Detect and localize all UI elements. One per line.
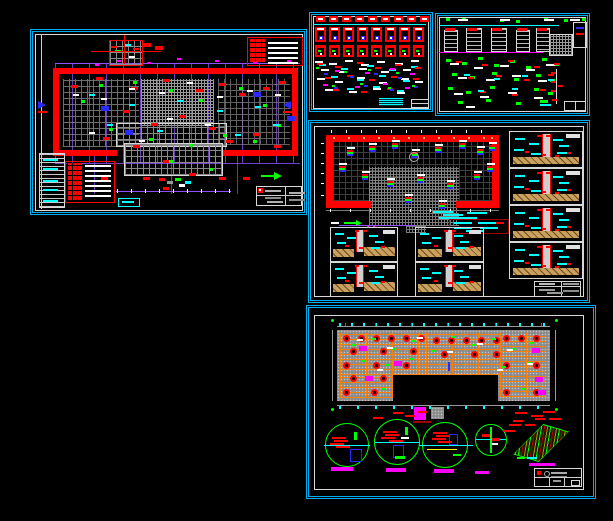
magenta-guide-line bbox=[439, 52, 543, 53]
note-box-cyan bbox=[118, 198, 140, 207]
section-marker-left bbox=[38, 101, 46, 109]
title-block bbox=[534, 281, 581, 297]
magenta-label bbox=[475, 471, 489, 474]
dimension-ticks-top bbox=[331, 130, 332, 133]
rebar-marks-red bbox=[444, 265, 448, 267]
annotation-marks-cyan bbox=[420, 233, 429, 235]
coping-detail-red bbox=[332, 437, 346, 439]
equipment-blocks-blue bbox=[101, 106, 109, 111]
dimension-ticks-magenta bbox=[345, 323, 346, 326]
detail-label bbox=[566, 171, 580, 175]
mini-detail-marks bbox=[159, 178, 165, 181]
earth-hatch bbox=[513, 194, 579, 201]
note-lines-cyan bbox=[433, 211, 453, 213]
dimension-line-right bbox=[555, 330, 556, 401]
magenta-block bbox=[414, 407, 426, 420]
schedule-text-bars bbox=[85, 165, 111, 167]
hatched-room-right bbox=[218, 79, 290, 145]
title-block-divider bbox=[535, 477, 581, 478]
coping-detail-red bbox=[482, 434, 490, 437]
title-block-divider bbox=[257, 195, 301, 196]
red-note-marks bbox=[143, 43, 151, 47]
section-marker-label bbox=[38, 111, 47, 113]
detail-frames-row1-bars bbox=[317, 28, 324, 30]
title-block-divider bbox=[412, 103, 428, 104]
annotation-marks-red bbox=[317, 63, 323, 65]
cyan-dash bbox=[527, 457, 537, 459]
red-wall-bottom-left bbox=[326, 201, 371, 208]
magenta-label bbox=[386, 468, 406, 472]
dimension-line-bottom bbox=[337, 405, 550, 406]
title-text-bars bbox=[265, 190, 281, 192]
magenta-label bbox=[529, 463, 555, 466]
green-axis-line bbox=[490, 427, 492, 453]
rebar-marks-red bbox=[355, 230, 359, 232]
sheet-green-details[interactable] bbox=[435, 13, 590, 116]
section-detail-panel bbox=[330, 227, 398, 262]
title-text-bars bbox=[553, 480, 561, 482]
detail-column-box bbox=[491, 28, 507, 52]
schedule-cells bbox=[249, 39, 265, 63]
callout-circle bbox=[374, 419, 420, 465]
magenta-label bbox=[434, 469, 454, 473]
sheet-framing-plan[interactable] bbox=[306, 305, 596, 499]
legend-highlight-bars bbox=[43, 159, 58, 161]
dimension-line-top bbox=[337, 326, 550, 327]
section-marker-label bbox=[283, 111, 292, 113]
annotation-marks-green bbox=[446, 59, 451, 62]
dimension-ticks-top bbox=[339, 323, 341, 326]
scale-bar bbox=[331, 222, 339, 224]
earth-hatch bbox=[364, 247, 395, 256]
red-wall-bottom-right bbox=[221, 150, 298, 156]
earth-hatch bbox=[333, 284, 354, 292]
title-block-divider bbox=[561, 282, 562, 296]
red-wall-bottom-right bbox=[456, 201, 499, 208]
lower-wing-lower bbox=[124, 143, 223, 176]
detail-axis-vertical bbox=[124, 35, 125, 64]
note-mark-red bbox=[496, 222, 504, 224]
detail-box-right bbox=[573, 22, 587, 48]
green-arrow bbox=[344, 222, 356, 224]
coping-detail-red bbox=[433, 432, 447, 434]
section-detail-panel bbox=[509, 168, 583, 205]
cyan-label-bar bbox=[540, 104, 551, 106]
beam-grid bbox=[500, 333, 546, 397]
annotation-marks-white bbox=[129, 88, 135, 90]
title-block bbox=[564, 101, 586, 111]
top-row-green-marks bbox=[446, 18, 450, 21]
rebar-marks-red bbox=[537, 209, 541, 211]
title-block bbox=[534, 468, 582, 487]
note-lines-cyan bbox=[454, 222, 472, 224]
annotation-marks-blue bbox=[324, 73, 328, 75]
table-line-cyan bbox=[439, 25, 559, 26]
detail-column-box bbox=[466, 28, 482, 52]
red-wall-left bbox=[326, 135, 333, 208]
red-wall-top bbox=[53, 68, 298, 74]
logo-mark bbox=[537, 471, 541, 475]
plan-circle-feature bbox=[409, 152, 419, 162]
title-text-bars bbox=[551, 472, 567, 474]
annotation-marks-cyan bbox=[464, 74, 470, 76]
red-wall-right bbox=[492, 135, 499, 208]
annotation-marks-cyan bbox=[335, 268, 344, 270]
foundation-column bbox=[542, 245, 551, 268]
detail-frames-row1-pips bbox=[320, 37, 322, 39]
wall-stud-dots bbox=[333, 137, 335, 139]
section-detail-panel bbox=[509, 131, 583, 168]
title-block bbox=[256, 186, 302, 206]
sheet-floor-plan[interactable] bbox=[30, 29, 307, 215]
annotation-marks-white bbox=[450, 63, 459, 65]
membrane-line-cyan bbox=[419, 445, 473, 446]
cad-canvas bbox=[0, 0, 613, 521]
annotation-marks-cyan bbox=[515, 212, 525, 214]
annotation-marks-red bbox=[393, 412, 403, 414]
annotation-marks-cyan bbox=[335, 233, 344, 235]
callout-circle bbox=[325, 423, 369, 467]
membrane-line-cyan bbox=[375, 442, 419, 443]
earth-hatch bbox=[513, 268, 579, 275]
beam-grid bbox=[426, 333, 500, 375]
section-detail-panel bbox=[415, 262, 484, 297]
title-block-divider bbox=[564, 477, 565, 486]
title-block-divider bbox=[575, 102, 576, 110]
beam-labels-white bbox=[357, 339, 363, 341]
detail-frames-row2-pips bbox=[320, 53, 322, 55]
white-dash bbox=[492, 443, 498, 445]
riser-detail-line bbox=[556, 69, 557, 104]
title-block-cell bbox=[571, 480, 580, 486]
dimension-line-left bbox=[332, 330, 333, 401]
dimension-ticks-bottom bbox=[330, 209, 331, 212]
earth-hatch bbox=[453, 282, 481, 291]
foundation-column bbox=[542, 171, 551, 194]
schedule-table-bottom bbox=[65, 161, 115, 203]
magenta-label bbox=[331, 467, 353, 471]
opening-marks-magenta bbox=[359, 346, 367, 351]
annotation-marks-magenta bbox=[335, 70, 340, 72]
slab-notch bbox=[393, 375, 498, 401]
sheet-detail-grid[interactable] bbox=[309, 12, 433, 112]
table-line-cyan bbox=[313, 24, 426, 25]
section-detail-panel bbox=[509, 242, 583, 279]
riser-detail-marks bbox=[551, 72, 556, 74]
membrane-line-cyan bbox=[324, 445, 370, 446]
detail-label bbox=[566, 208, 580, 212]
section-detail-panel bbox=[330, 262, 398, 297]
green-arrow bbox=[261, 175, 274, 177]
section-detail-panel bbox=[509, 205, 583, 242]
detail-column-box bbox=[444, 30, 458, 52]
title-text-bars bbox=[539, 283, 555, 285]
schedule-text-bars bbox=[268, 42, 298, 44]
earth-hatch bbox=[453, 247, 481, 256]
green-arrow-head bbox=[274, 172, 282, 180]
striped-legend-table bbox=[379, 98, 403, 106]
foundation-column bbox=[445, 265, 453, 287]
green-bar bbox=[405, 427, 408, 435]
equipment-tag-blue bbox=[347, 154, 353, 156]
plan-extension-grid bbox=[369, 167, 459, 226]
blue-frame bbox=[449, 434, 458, 445]
foundation-column bbox=[542, 208, 551, 231]
detail-column-box bbox=[516, 30, 530, 52]
dimension-marks-magenta bbox=[117, 60, 121, 62]
detail-label bbox=[469, 265, 481, 269]
dimension-line bbox=[116, 191, 231, 192]
red-wall-left bbox=[53, 68, 59, 156]
annotation-marks-cyan bbox=[420, 268, 429, 270]
equipment-tag-labels bbox=[347, 147, 355, 149]
rebar-marks-red bbox=[537, 246, 541, 248]
sheet-inner-frame bbox=[313, 16, 429, 109]
detail-label bbox=[383, 265, 395, 269]
membrane-line-cyan bbox=[476, 439, 506, 440]
earth-hatch bbox=[364, 282, 395, 291]
dimension-ticks-left bbox=[321, 143, 324, 144]
annotation-marks-cyan bbox=[515, 175, 525, 177]
detail-axis-horizontal bbox=[91, 51, 161, 52]
earth-hatch bbox=[513, 231, 579, 238]
foundation-column bbox=[356, 265, 364, 287]
detail-frames-row2-green bbox=[318, 50, 321, 52]
foundation-column bbox=[542, 134, 551, 157]
detail-label bbox=[566, 245, 580, 249]
green-label-bar bbox=[540, 100, 548, 103]
foundation-column bbox=[445, 230, 453, 252]
foundation-column bbox=[356, 230, 364, 252]
red-wall-top bbox=[326, 135, 499, 142]
section-detail-panel bbox=[415, 227, 484, 262]
schedule-table-top bbox=[247, 37, 303, 66]
annotation-marks-green bbox=[351, 344, 356, 346]
rebar-marks-red bbox=[355, 265, 359, 267]
annotation-marks-green bbox=[316, 67, 319, 69]
annotation-marks-red bbox=[456, 61, 462, 63]
gray-block bbox=[431, 407, 444, 419]
grid-line-extension bbox=[339, 225, 415, 226]
earth-hatch bbox=[333, 249, 354, 257]
dimension-ticks bbox=[117, 189, 118, 193]
red-wall-right bbox=[292, 68, 298, 156]
green-label-bar bbox=[395, 456, 405, 459]
green-dash bbox=[453, 454, 461, 456]
grid-end-dots bbox=[331, 319, 334, 322]
detail-column-headers bbox=[445, 28, 455, 31]
annotation-marks-red bbox=[71, 85, 78, 88]
column-marker-centers bbox=[345, 337, 348, 340]
detail-column-box bbox=[536, 28, 550, 52]
blue-frame bbox=[350, 449, 362, 462]
logo-mark bbox=[258, 188, 263, 193]
earth-hatch bbox=[418, 284, 442, 292]
sheet-foundation[interactable] bbox=[308, 120, 590, 303]
callout-circle bbox=[422, 422, 468, 468]
dimension-line bbox=[326, 210, 499, 211]
green-bar bbox=[354, 432, 357, 440]
annotation-marks-cyan bbox=[515, 249, 525, 251]
earth-hatch bbox=[513, 157, 579, 164]
detail-label bbox=[469, 230, 481, 234]
rebar-marks-red bbox=[537, 135, 541, 137]
top-row-white-bars bbox=[458, 19, 468, 21]
sheet-inner-frame bbox=[439, 17, 586, 112]
white-dash bbox=[401, 437, 409, 439]
schedule-cells bbox=[67, 163, 82, 201]
green-dash bbox=[517, 457, 525, 459]
detail-label bbox=[566, 134, 580, 138]
callout-circle bbox=[475, 424, 507, 456]
dimension-ticks-bottom bbox=[339, 406, 341, 409]
beam-grid bbox=[340, 333, 426, 375]
blue-bar bbox=[448, 362, 450, 371]
dark-red-base bbox=[413, 421, 431, 423]
beam-grid bbox=[340, 375, 393, 398]
annotation-marks-cyan bbox=[89, 94, 95, 96]
earth-hatch bbox=[418, 249, 442, 257]
title-block-divider bbox=[285, 187, 286, 205]
stair-detail-box bbox=[109, 40, 143, 66]
yellow-line bbox=[427, 449, 457, 450]
section-marker-right bbox=[283, 101, 291, 109]
legend-table bbox=[39, 153, 65, 208]
hatched-detail-box bbox=[549, 34, 573, 56]
detail-label bbox=[383, 230, 395, 234]
iso-annotation-red bbox=[515, 412, 527, 414]
rebar-marks-red bbox=[444, 230, 448, 232]
title-block bbox=[411, 99, 429, 108]
hatched-room-center bbox=[141, 79, 214, 126]
annotation-marks-green bbox=[81, 100, 85, 103]
title-block-divider bbox=[535, 286, 580, 287]
annotation-marks-cyan bbox=[515, 138, 525, 140]
title-block-divider bbox=[549, 477, 550, 486]
detail-row-top-labels bbox=[318, 18, 323, 20]
coping-detail-red bbox=[383, 431, 397, 433]
rebar-marks-red bbox=[537, 172, 541, 174]
